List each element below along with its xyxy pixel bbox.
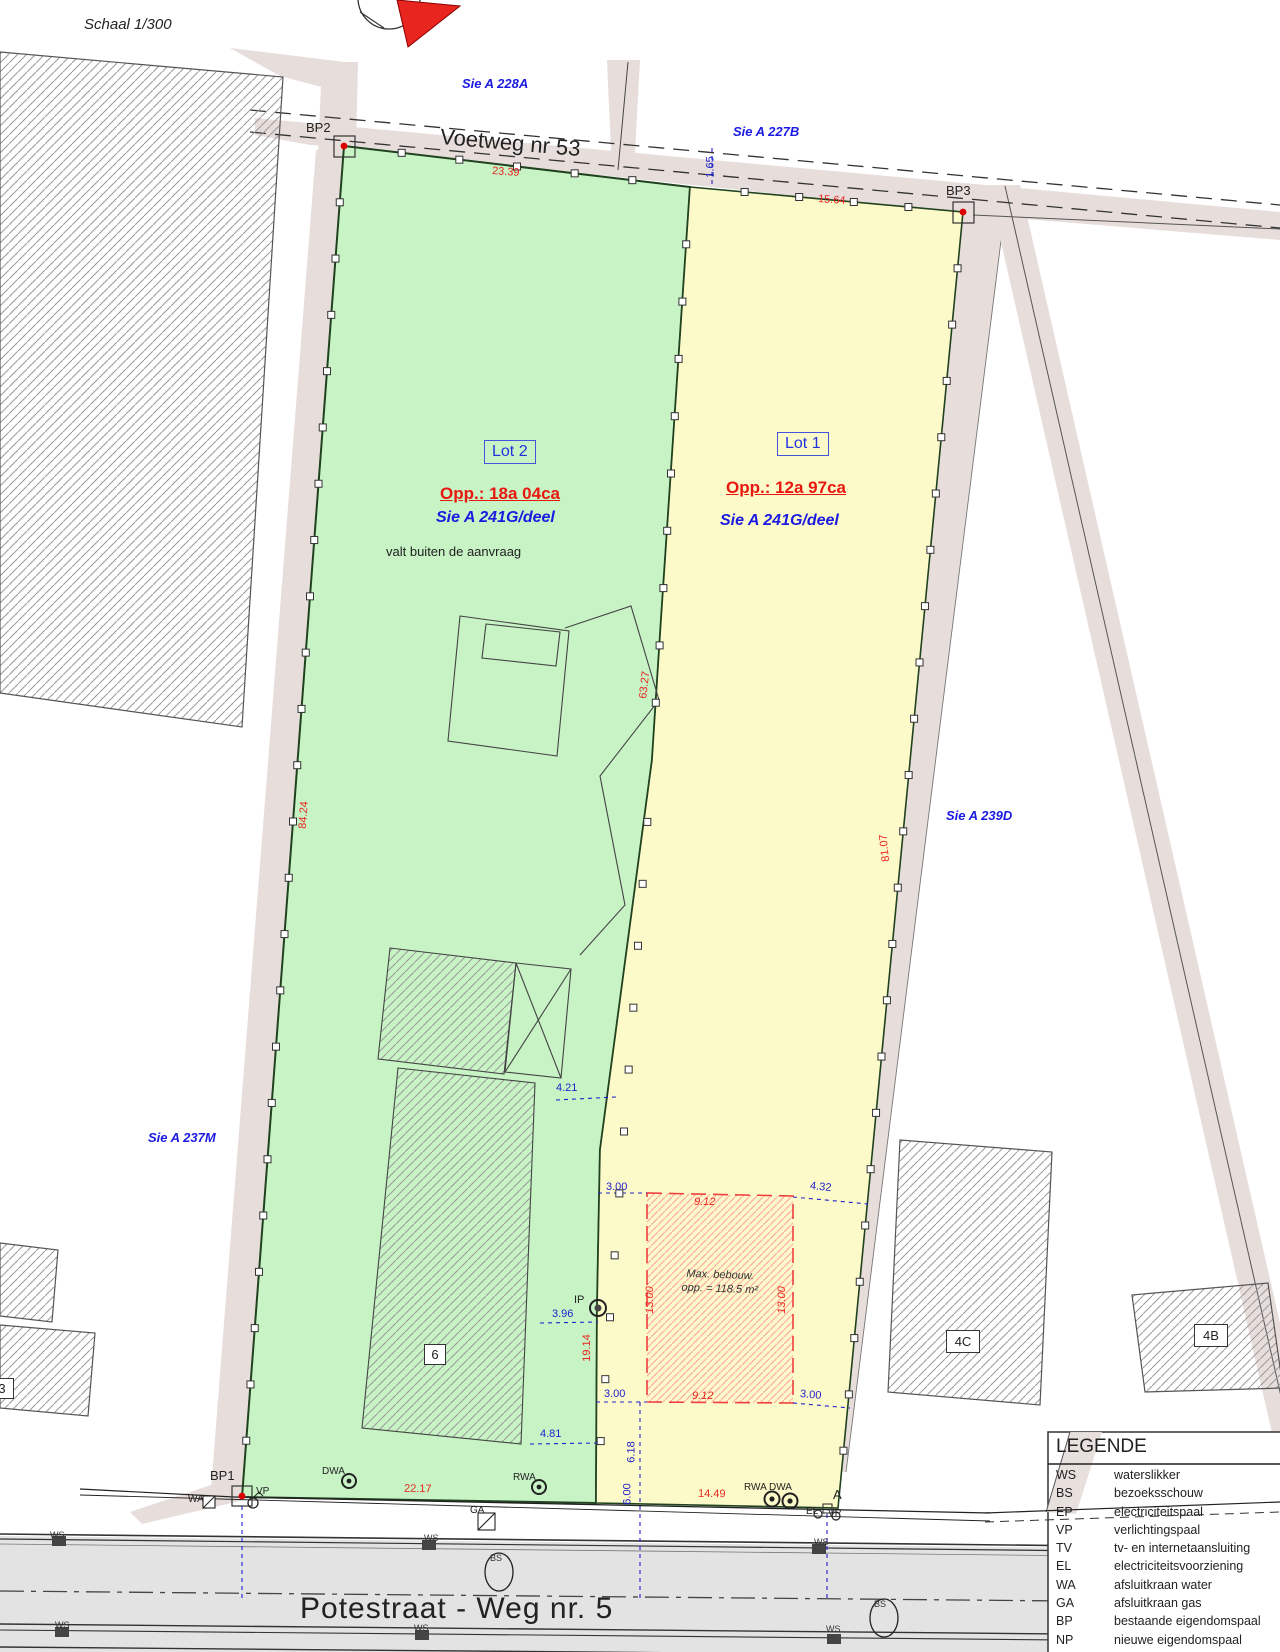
boundary-marker	[251, 1325, 258, 1332]
boundary-marker	[668, 470, 675, 477]
boundary-marker	[324, 368, 331, 375]
building-3-badge: 3	[0, 1378, 14, 1399]
benchmark-bp3-label: BP3	[946, 183, 971, 198]
boundary-marker	[315, 480, 322, 487]
dim-300-botright: 3.00	[800, 1388, 822, 1402]
boundary-marker	[243, 1437, 250, 1444]
ws-label: WS	[814, 1537, 829, 1547]
boundary-marker	[277, 987, 284, 994]
point-a-label: A	[833, 1487, 842, 1502]
boundary-marker	[943, 377, 950, 384]
boundary-marker	[571, 170, 578, 177]
lot1-area-label: Opp.: 12a 97ca	[726, 478, 846, 498]
building-4c-badge: 4C	[946, 1330, 980, 1353]
dim-300-botleft: 3.00	[604, 1388, 625, 1400]
bs-label: BS	[490, 1553, 502, 1563]
legend-code: VP	[1056, 1521, 1114, 1539]
ws-label: WS	[826, 1624, 841, 1634]
boundary-marker	[336, 199, 343, 206]
boundary-marker	[302, 649, 309, 656]
boundary-marker	[671, 413, 678, 420]
boundary-marker	[916, 659, 923, 666]
vp2-label: VP	[828, 1508, 841, 1519]
legend-desc: electriciteitsvoorziening	[1114, 1559, 1243, 1573]
boundary-marker	[851, 1335, 858, 1342]
boundary-marker	[621, 1128, 628, 1135]
max-build-zone	[647, 1193, 793, 1403]
dim-box-bottom: 9.12	[692, 1390, 713, 1402]
boundary-marker	[268, 1099, 275, 1106]
legend-desc: tv- en internetaansluiting	[1114, 1541, 1250, 1555]
legend-desc: bestaande eigendomspaal	[1114, 1614, 1261, 1628]
boundary-marker	[664, 527, 671, 534]
boundary-marker	[900, 828, 907, 835]
boundary-marker	[290, 818, 297, 825]
ga-label: GA	[470, 1505, 484, 1516]
legend: LEGENDE WSwaterslikkerBSbezoeksschouwEPe…	[1048, 1432, 1280, 1652]
lot1-name-badge: Lot 1	[777, 432, 829, 456]
boundary-marker	[307, 593, 314, 600]
lot2-cadastre-label: Sie A 241G/deel	[436, 509, 555, 527]
rwa-dwa-label: RWA DWA	[744, 1482, 792, 1493]
benchmark-bp1-label: BP1	[210, 1468, 235, 1483]
scale-note: Schaal 1/300	[84, 16, 172, 33]
legend-title: LEGENDE	[1056, 1436, 1280, 1458]
parcel-a237m-label: Sie A 237M	[148, 1130, 216, 1145]
legend-desc: verlichtingspaal	[1114, 1523, 1200, 1537]
legend-code: NP	[1056, 1631, 1114, 1649]
boundary-marker	[273, 1043, 280, 1050]
boundary-marker	[607, 1314, 614, 1321]
boundary-marker	[247, 1381, 254, 1388]
boundary-marker	[883, 997, 890, 1004]
dim-box-top: 9.12	[694, 1196, 715, 1208]
rwa-label: RWA	[513, 1472, 536, 1483]
boundary-marker	[932, 490, 939, 497]
boundary-marker	[264, 1156, 271, 1163]
plan-drawing	[0, 0, 1280, 1652]
dim-top-yellow: 15.64	[818, 193, 846, 207]
dim-left-edge: 84.24	[297, 801, 311, 829]
boundary-marker	[656, 642, 663, 649]
max-build-note: Max. bebouw. opp. = 118.5 m²	[660, 1266, 781, 1298]
boundary-marker	[281, 931, 288, 938]
legend-code: WA	[1056, 1576, 1114, 1594]
legend-code: GA	[1056, 1594, 1114, 1612]
lot2-note-label: valt buiten de aanvraag	[386, 544, 521, 559]
boundary-marker	[332, 255, 339, 262]
dim-bottom-green: 22.17	[404, 1483, 432, 1495]
building-6-badge: 6	[424, 1344, 446, 1365]
legend-code: TV	[1056, 1539, 1114, 1557]
legend-desc: afsluitkraan water	[1114, 1578, 1212, 1592]
boundary-marker	[845, 1391, 852, 1398]
street-potestraat-label: Potestraat - Weg nr. 5	[300, 1592, 613, 1626]
boundary-marker	[319, 424, 326, 431]
boundary-marker	[456, 156, 463, 163]
legend-code: EP	[1056, 1503, 1114, 1521]
dim-618: 6.18	[626, 1441, 638, 1462]
benchmark-bp2-label: BP2	[306, 120, 331, 135]
boundary-marker	[328, 311, 335, 318]
dim-divider-low: 19.14	[581, 1334, 593, 1362]
boundary-marker	[660, 585, 667, 592]
dim-box-left: 13.00	[644, 1286, 656, 1314]
ws-label: WS	[424, 1533, 439, 1543]
boundary-marker	[949, 321, 956, 328]
point-ip-label: IP	[574, 1294, 584, 1306]
boundary-marker	[639, 880, 646, 887]
boundary-marker	[652, 699, 659, 706]
legend-row: EPelectriciteitspaal	[1056, 1503, 1280, 1521]
boundary-marker	[873, 1109, 880, 1116]
lot1-cadastre-label: Sie A 241G/deel	[720, 512, 839, 530]
vp-label: VP	[256, 1486, 269, 1497]
boundary-marker	[856, 1278, 863, 1285]
boundary-marker	[298, 705, 305, 712]
legend-desc: bezoeksschouw	[1114, 1486, 1203, 1500]
boundary-marker	[285, 874, 292, 881]
parcel-a228a-label: Sie A 228A	[462, 76, 528, 91]
legend-row: ELelectriciteitsvoorziening	[1056, 1557, 1280, 1575]
legend-row: GAafsluitkraan gas	[1056, 1594, 1280, 1612]
boundary-marker	[878, 1053, 885, 1060]
dim-432: 4.32	[809, 1180, 832, 1194]
north-arrow-icon	[358, 0, 460, 47]
parcel-a239d-label: Sie A 239D	[946, 808, 1012, 823]
legend-row: WSwaterslikker	[1056, 1466, 1280, 1484]
boundary-marker	[675, 355, 682, 362]
legend-row: NPnieuwe eigendomspaal	[1056, 1631, 1280, 1649]
boundary-marker	[905, 772, 912, 779]
boundary-marker	[398, 149, 405, 156]
dim-bottom-yellow: 14.49	[698, 1488, 726, 1500]
survey-plan-canvas: Schaal 1/300 Voetweg nr 53 Potestraat - …	[0, 0, 1280, 1652]
boundary-marker	[840, 1447, 847, 1454]
ws-label: WS	[414, 1623, 429, 1633]
boundary-marker	[867, 1166, 874, 1173]
boundary-marker	[602, 1376, 609, 1383]
legend-code: BS	[1056, 1484, 1114, 1502]
boundary-marker	[889, 940, 896, 947]
boundary-marker	[850, 199, 857, 206]
legend-row: BSbezoeksschouw	[1056, 1484, 1280, 1502]
ws-symbol	[827, 1634, 841, 1644]
dim-top-green: 23.39	[492, 165, 520, 179]
dim-481: 4.81	[540, 1428, 561, 1440]
legend-code: BP	[1056, 1612, 1114, 1630]
building-4b-badge: 4B	[1194, 1324, 1228, 1347]
boundary-marker	[630, 1004, 637, 1011]
boundary-marker	[625, 1066, 632, 1073]
boundary-marker	[796, 194, 803, 201]
boundary-marker	[679, 298, 686, 305]
legend-row: BPbestaande eigendomspaal	[1056, 1612, 1280, 1630]
parcel-a227b-label: Sie A 227B	[733, 124, 799, 139]
boundary-marker	[954, 265, 961, 272]
dim-421: 4.21	[556, 1082, 577, 1094]
boundary-marker	[894, 884, 901, 891]
boundary-marker	[911, 715, 918, 722]
boundary-marker	[927, 546, 934, 553]
boundary-marker	[294, 762, 301, 769]
boundary-marker	[683, 241, 690, 248]
ws-label: WS	[50, 1530, 65, 1540]
boundary-marker	[256, 1268, 263, 1275]
lot2-area-label: Opp.: 18a 04ca	[440, 484, 560, 504]
legend-desc: nieuwe eigendomspaal	[1114, 1633, 1242, 1647]
boundary-marker	[644, 818, 651, 825]
boundary-marker	[260, 1212, 267, 1219]
el-label: EL	[806, 1506, 818, 1517]
legend-code: EL	[1056, 1557, 1114, 1575]
legend-row: WAafsluitkraan water	[1056, 1576, 1280, 1594]
boundary-marker	[597, 1438, 604, 1445]
dim-600: 6.00	[622, 1483, 634, 1504]
boundary-marker	[311, 537, 318, 544]
legend-row: TVtv- en internetaansluiting	[1056, 1539, 1280, 1557]
legend-desc: electriciteitspaal	[1114, 1505, 1203, 1519]
dim-gap-165: 1.65	[705, 156, 717, 177]
boundary-marker	[938, 434, 945, 441]
bs-label: BS	[874, 1599, 886, 1609]
boundary-marker	[611, 1252, 618, 1259]
boundary-marker	[741, 189, 748, 196]
legend-code: WS	[1056, 1466, 1114, 1484]
dim-300-topleft: 3.00	[606, 1181, 627, 1193]
boundary-marker	[921, 603, 928, 610]
legend-desc: afsluitkraan gas	[1114, 1596, 1202, 1610]
wa-label: WA	[188, 1494, 204, 1505]
dwa-label: DWA	[322, 1466, 345, 1477]
lot2-name-badge: Lot 2	[484, 440, 536, 464]
boundary-marker	[635, 942, 642, 949]
boundary-marker	[862, 1222, 869, 1229]
legend-rows: WSwaterslikkerBSbezoeksschouwEPelectrici…	[1056, 1466, 1280, 1652]
legend-desc: waterslikker	[1114, 1468, 1180, 1482]
boundary-marker	[629, 177, 636, 184]
dim-396: 3.96	[552, 1308, 573, 1320]
ws-label: WS	[55, 1620, 70, 1630]
legend-row: VPverlichtingspaal	[1056, 1521, 1280, 1539]
boundary-marker	[905, 204, 912, 211]
